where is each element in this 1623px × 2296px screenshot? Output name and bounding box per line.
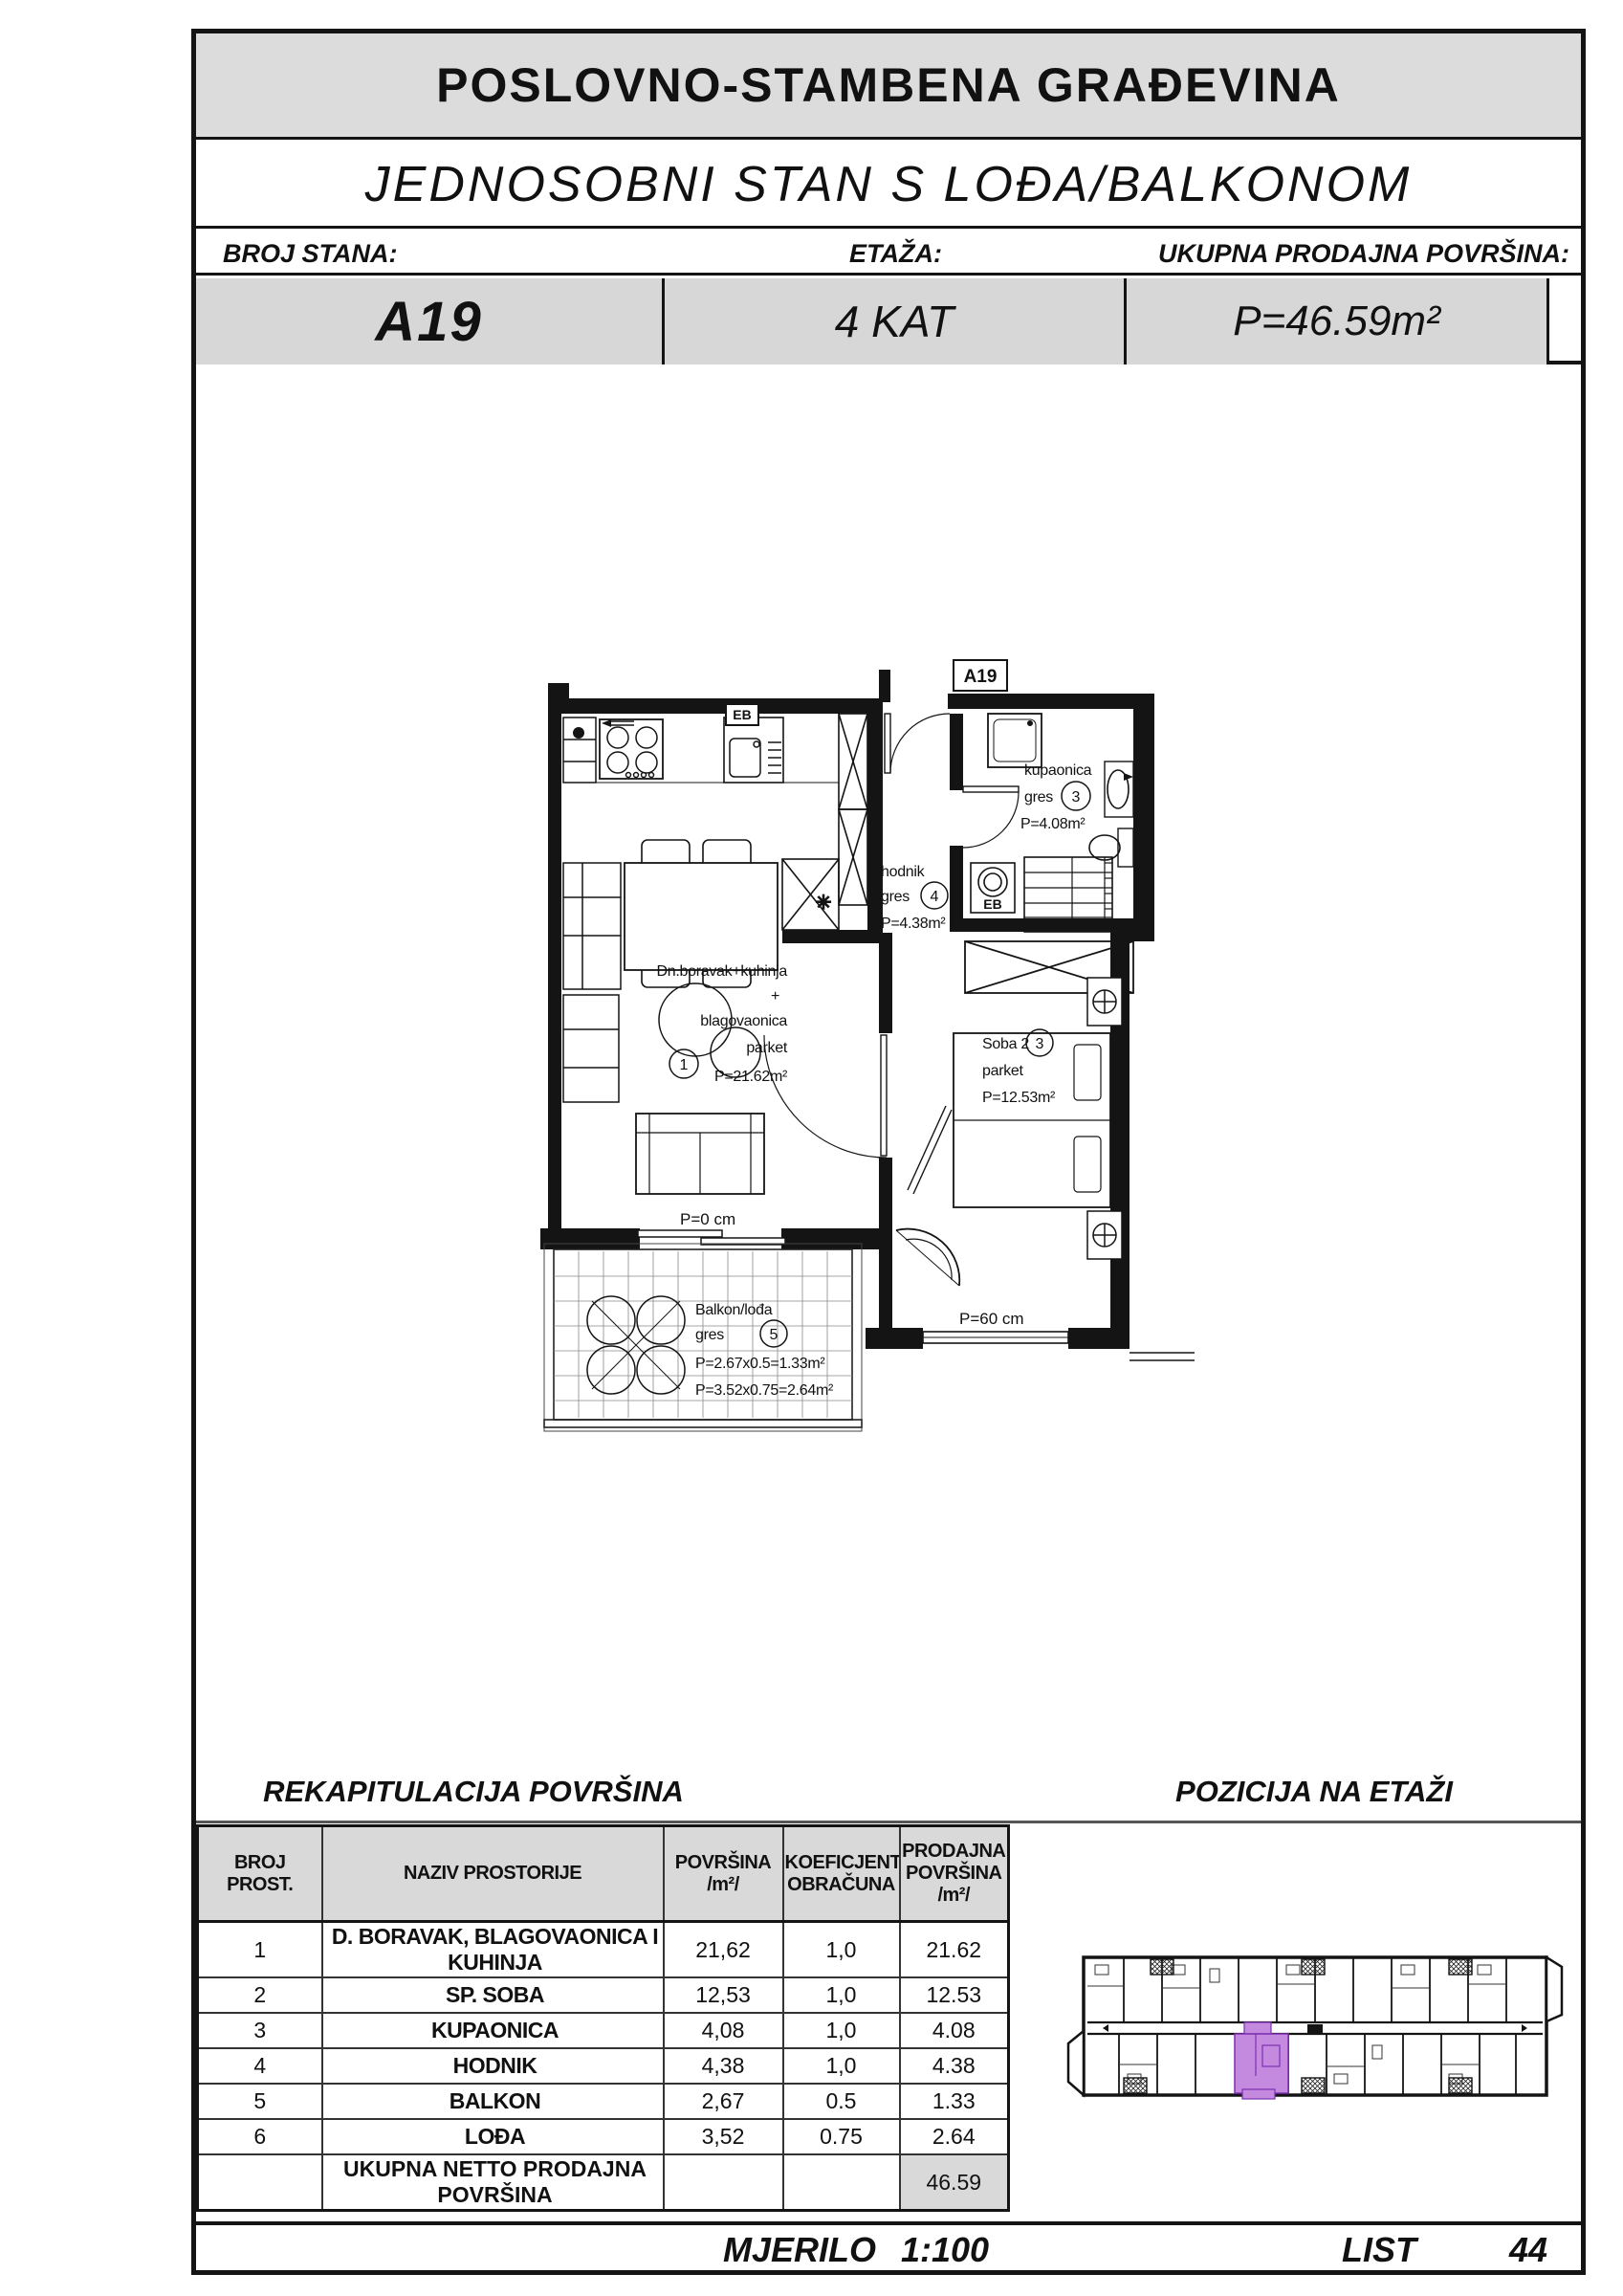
broj-stana-cell: A19 (196, 278, 665, 364)
broj-stana-label: BROJ STANA: (223, 239, 398, 269)
svg-text:3: 3 (1036, 1036, 1044, 1052)
entry-door (885, 714, 950, 773)
svg-text:Dn.boravak+kuhinja: Dn.boravak+kuhinja (657, 963, 788, 980)
dim-p0-label: P=0 cm (680, 1210, 735, 1228)
armchair-group (659, 983, 760, 1077)
total-row: UKUPNA NETTO PRODAJNA POVRŠINA 46.59 (198, 2154, 1009, 2211)
hodnik-label: hodnik gres 4 P=4.38m² (881, 864, 948, 932)
col-koeficjent: KOEFICJENT OBRAČUNA (783, 1826, 900, 1922)
pozicija-title: POZICIJA NA ETAŽI (1104, 1775, 1524, 1809)
svg-text:P=4.38m²: P=4.38m² (881, 916, 946, 932)
svg-text:gres: gres (1024, 789, 1053, 806)
shaft-hatch: ✳ (782, 714, 867, 930)
svg-text:parket: parket (746, 1040, 788, 1056)
bedroom-window (923, 1332, 1195, 1360)
mjerilo-value: 1:100 (901, 2230, 989, 2270)
svg-text:Soba 2: Soba 2 (982, 1036, 1029, 1052)
datasheet-page: POSLOVNO-STAMBENA GRAĐEVINA JEDNOSOBNI S… (0, 0, 1623, 2296)
etaza-cell: 4 KAT (665, 278, 1127, 364)
apartment-title: JEDNOSOBNI STAN S LOĐA/BALKONOM (365, 156, 1413, 213)
dim-p60-label: P=60 cm (959, 1310, 1024, 1328)
recap-table: BROJ PROST. NAZIV PROSTORIJE POVRŠINA /m… (196, 1824, 1010, 2212)
scale-field: MJERILO 1:100 (483, 2230, 1229, 2270)
balcony-door (638, 1230, 785, 1245)
svg-text:Balkon/lođa: Balkon/lođa (695, 1302, 773, 1318)
eb-kitchen-label: EB (733, 707, 751, 722)
etaza-value: 4 KAT (835, 296, 954, 347)
table-row: 4HODNIK 4,381,04.38 (198, 2048, 1009, 2084)
balcony-table-icon (587, 1296, 685, 1394)
mjerilo-label: MJERILO (723, 2230, 876, 2270)
list-label: LIST (1342, 2230, 1416, 2270)
table-row: 1D. BORAVAK, BLAGOVAONICA I KUHINJA 21,6… (198, 1922, 1009, 1978)
povrsina-cell: P=46.59m² (1127, 278, 1549, 364)
svg-text:1: 1 (680, 1057, 689, 1073)
svg-text:3: 3 (1072, 789, 1081, 806)
table-row: 5BALKON 2,670.51.33 (198, 2084, 1009, 2119)
toilet-icon (1089, 828, 1133, 867)
broj-stana-value: A19 (375, 290, 482, 354)
stove-icon (600, 719, 663, 779)
floor-position-map (1066, 1931, 1564, 2112)
footer-band: MJERILO 1:100 LIST 44 (196, 2221, 1581, 2270)
svg-text:4: 4 (931, 889, 939, 905)
svg-text:5: 5 (770, 1327, 779, 1343)
apartment-title-band: JEDNOSOBNI STAN S LOĐA/BALKONOM (196, 143, 1581, 229)
col-naziv: NAZIV PROSTORIJE (322, 1826, 664, 1922)
kupaonica-label: kupaonica gres 3 P=4.08m² (1020, 762, 1092, 832)
col-prodajna: PRODAJNA POVRŠINA /m²/ (900, 1826, 1009, 1922)
svg-text:P=2.67x0.5=1.33m²: P=2.67x0.5=1.33m² (695, 1356, 825, 1372)
washbasin-icon (1105, 762, 1133, 817)
corner-dot-icon (573, 727, 584, 739)
povrsina-label: UKUPNA PRODAJNA POVRŠINA: (1158, 239, 1569, 269)
col-broj-prost: BROJ PROST. (198, 1826, 322, 1922)
total-value: 46.59 (900, 2154, 1009, 2211)
svg-text:parket: parket (982, 1063, 1024, 1079)
svg-text:+: + (771, 988, 779, 1004)
etaza-label: ETAŽA: (665, 239, 1127, 269)
eb-bath-label: EB (983, 896, 1001, 912)
svg-text:A19: A19 (964, 667, 998, 687)
kitchen-counter (563, 704, 839, 783)
bedroom-chair (896, 1229, 959, 1286)
svg-text:✳: ✳ (816, 893, 832, 914)
section-rule (196, 1821, 1581, 1823)
shower-icon (988, 714, 1042, 767)
radiator-top (1087, 978, 1122, 1026)
total-label: UKUPNA NETTO PRODAJNA POVRŠINA (322, 2154, 664, 2211)
unit-tag: A19 (954, 660, 1007, 691)
couch (636, 1114, 764, 1194)
bedroom-door (764, 1035, 952, 1194)
highlighted-unit (1235, 2022, 1288, 2099)
balkon-label: Balkon/lođa gres 5 P=2.67x0.5=1.33m² P=3… (695, 1302, 834, 1399)
floor-plan: A19 (540, 658, 1210, 1452)
col-povrsina: POVRŠINA /m²/ (664, 1826, 783, 1922)
svg-text:gres: gres (695, 1327, 724, 1343)
recap-title: REKAPITULACIJA POVRŠINA (253, 1775, 693, 1809)
cabinet (563, 863, 621, 1102)
svg-text:P=4.08m²: P=4.08m² (1020, 816, 1086, 832)
povrsina-value: P=46.59m² (1233, 298, 1439, 345)
radiator-bottom (1087, 1211, 1122, 1259)
svg-text:hodnik: hodnik (881, 864, 926, 880)
sheet-field: LIST 44 (1342, 2230, 1547, 2270)
building-title-band: POSLOVNO-STAMBENA GRAĐEVINA (196, 33, 1581, 140)
svg-text:P=12.53m²: P=12.53m² (982, 1090, 1056, 1106)
field-labels-row: BROJ STANA: ETAŽA: UKUPNA PRODAJNA POVRŠ… (196, 232, 1581, 276)
svg-text:P=3.52x0.75=2.64m²: P=3.52x0.75=2.64m² (695, 1382, 834, 1399)
bathroom-door (963, 786, 1019, 848)
svg-text:gres: gres (881, 889, 910, 905)
recap-header-row: BROJ PROST. NAZIV PROSTORIJE POVRŠINA /m… (198, 1826, 1009, 1922)
building-title: POSLOVNO-STAMBENA GRAĐEVINA (436, 57, 1341, 113)
field-values-row: A19 4 KAT P=46.59m² (196, 278, 1581, 364)
table-row: 6LOĐA 3,520.752.64 (198, 2119, 1009, 2154)
page-frame: POSLOVNO-STAMBENA GRAĐEVINA JEDNOSOBNI S… (191, 29, 1586, 2275)
svg-text:kupaonica: kupaonica (1024, 762, 1092, 779)
table-row: 3KUPAONICA 4,081,04.08 (198, 2013, 1009, 2048)
table-row: 2SP. SOBA 12,531,012.53 (198, 1977, 1009, 2013)
bed (954, 1033, 1110, 1207)
list-value: 44 (1509, 2230, 1547, 2270)
soba-label: Soba 2 3 parket P=12.53m² (982, 1029, 1056, 1106)
svg-text:P=21.62m²: P=21.62m² (714, 1069, 788, 1085)
svg-text:blagovaonica: blagovaonica (700, 1013, 787, 1029)
